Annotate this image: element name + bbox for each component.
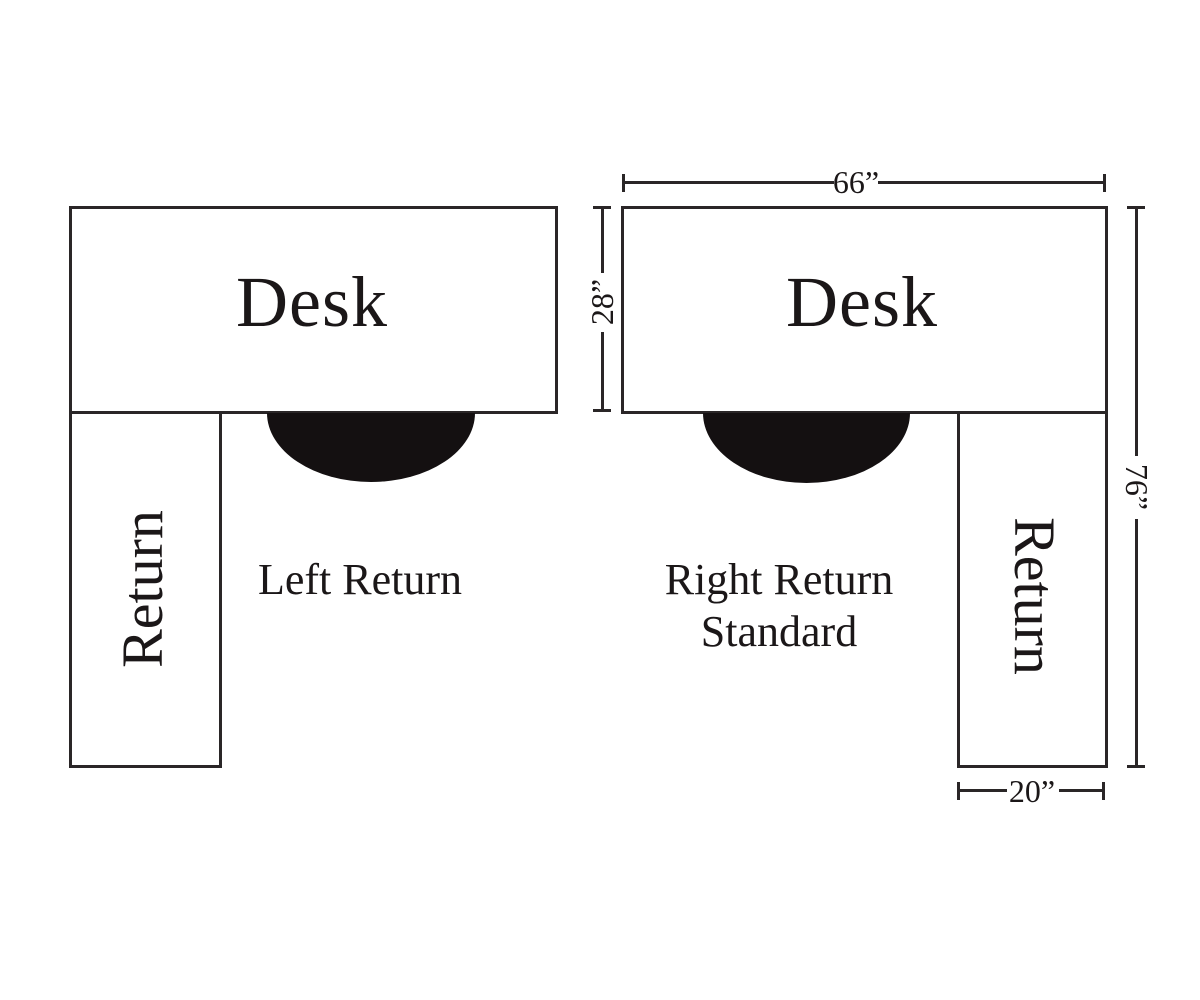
right-diagram-caption-line2: Standard [665,606,894,658]
dim-20-line-left [957,789,1007,792]
dim-28-line-bottom [601,332,604,412]
dim-20-tick-right [1102,782,1105,800]
dim-66-line-left [622,181,834,184]
left-desk-label: Desk [236,266,388,338]
dim-66-tick-right [1103,174,1106,192]
dim-28-line-top [601,208,604,273]
dim-76-line-bottom [1135,519,1138,768]
dim-66-line-right [878,181,1106,184]
dim-28-tick-top [593,206,611,209]
dim-66-tick-left [622,174,625,192]
right-diagram-caption-line1: Right Return [665,554,894,606]
dim-20-line-right [1059,789,1105,792]
dim-76-tick-top [1127,206,1145,209]
right-desk-label: Desk [786,266,938,338]
dim-76-tick-bottom [1127,765,1145,768]
dim-28-tick-bottom [593,409,611,412]
left-return-label: Return [114,510,172,668]
dim-20-tick-left [957,782,960,800]
dim-76-line-top [1135,208,1138,456]
dim-28-label: 28” [586,279,618,325]
dim-76-label: 76” [1121,464,1153,510]
chair-icon [267,413,475,482]
dim-66-label: 66” [833,166,879,198]
right-return-label: Return [1005,517,1063,675]
dim-20-label: 20” [1009,775,1055,807]
desk-configuration-diagram: Desk Return Left Return Desk Return Righ… [0,0,1200,1000]
chair-icon [703,413,910,483]
right-diagram-caption: Right Return Standard [665,554,894,658]
left-diagram-caption: Left Return [258,558,462,602]
